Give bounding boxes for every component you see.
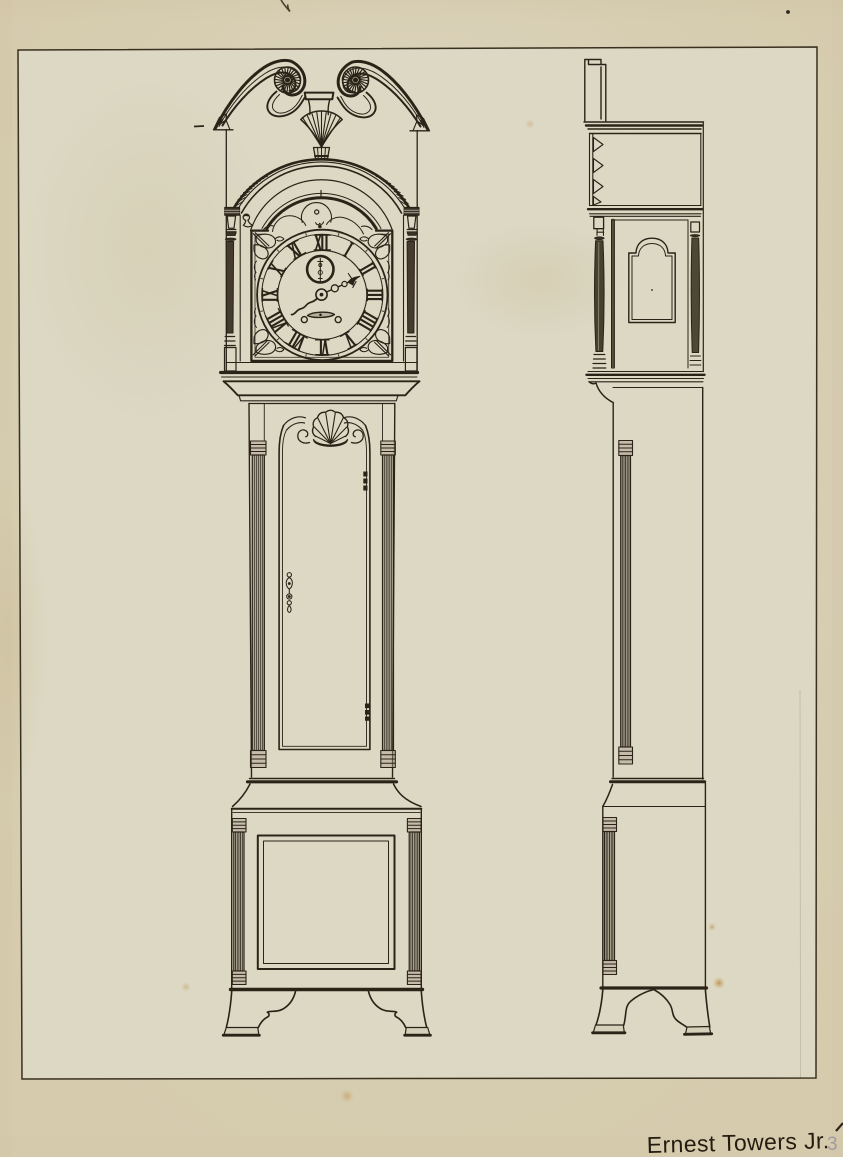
svg-text:3: 3	[827, 1134, 838, 1155]
svg-text:Ernest Towers Jr.: Ernest Towers Jr.	[646, 1127, 829, 1157]
